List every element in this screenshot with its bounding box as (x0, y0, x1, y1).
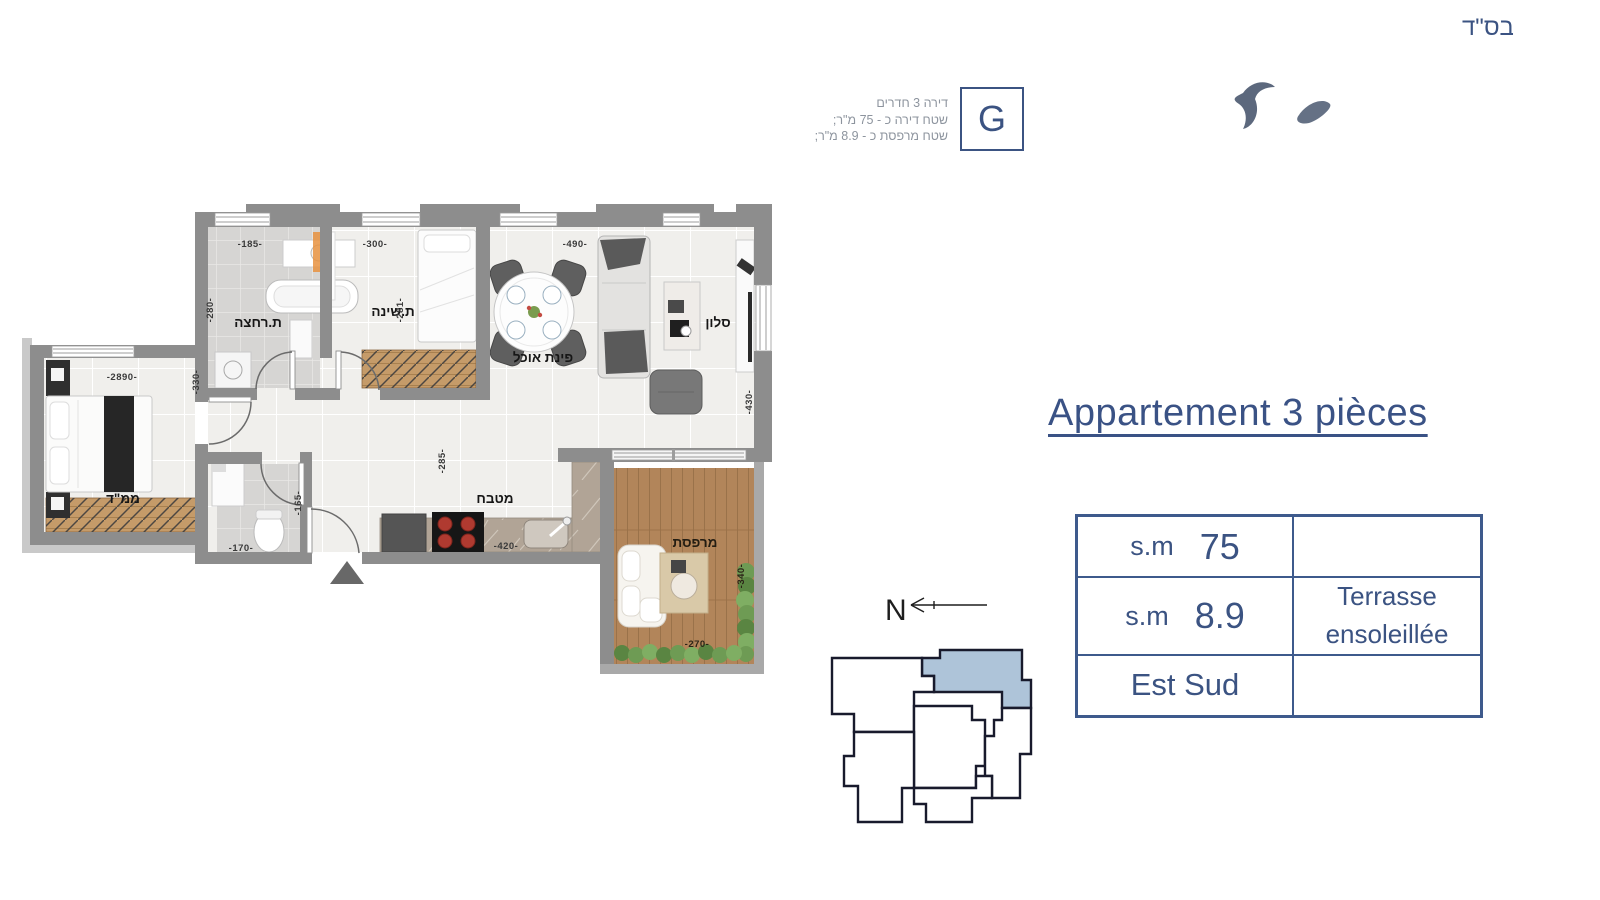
floorplan-sheet: בס"ד דירה 3 חדרים שטח דירה כ - 75 מ"ר; ש… (0, 0, 1600, 900)
dim-kitchen-width: -420- (494, 541, 519, 552)
door-leaf (336, 351, 341, 389)
washer (215, 352, 251, 388)
dim-bathroom-width: -185- (238, 239, 263, 250)
pillow (50, 447, 69, 484)
pillow (424, 235, 470, 252)
north-arrow-icon (911, 598, 987, 612)
terrace-note: Terrasse ensoleillée (1294, 578, 1480, 653)
dim-wc-width: -170- (229, 543, 254, 554)
door-leaf (307, 507, 312, 553)
throw-cushion (604, 330, 648, 374)
bird-icon (1235, 82, 1275, 129)
compass: N (865, 588, 1000, 633)
outdoor-table (671, 573, 697, 599)
dim-bedroom-width: -300- (363, 239, 388, 250)
counter-corner (572, 462, 602, 552)
door-leaf (290, 351, 295, 389)
apartment-area-value: 75 (1200, 526, 1240, 568)
unit-info-line3: שטח מרפסת כ - 8.9 מ"ר; (800, 128, 948, 145)
dim-salon-height: -430- (744, 390, 755, 415)
birds-illustration (1215, 75, 1340, 140)
room-label-mamad: ממ"ד (106, 491, 140, 506)
unit-letter-box: G (960, 87, 1024, 151)
floor-plan: ממ"ד ת.רחצה ת.שינה פינת אוכל סלון מטבח מ… (0, 0, 800, 900)
room-label-bedroom: ת.שינה (371, 304, 414, 319)
area-unit: s.m (1130, 531, 1174, 562)
bed-runner (104, 396, 134, 492)
orientation-note (1294, 656, 1480, 715)
coffee-table (664, 282, 700, 350)
spec-table: s.m 75 s.m 8.9 Terrasse ensoleillée Est … (1075, 514, 1483, 718)
entrance-arrow-icon (330, 561, 364, 584)
compass-north-label: N (885, 594, 907, 627)
fridge (382, 514, 426, 552)
unit-info-line1: דירה 3 חדרים (800, 95, 948, 112)
dim-bathroom-height: -280- (205, 298, 216, 323)
room-label-dining: פינת אוכל (513, 350, 574, 365)
terrace-unit: s.m (1125, 601, 1169, 632)
tv (748, 292, 752, 362)
room-label-salon: סלון (705, 315, 730, 330)
unit-letter: G (978, 98, 1006, 140)
bird-icon (1297, 101, 1330, 124)
apartment-title: Appartement 3 pièces (1048, 392, 1498, 435)
area-note (1294, 517, 1480, 576)
door-leaf (209, 397, 251, 402)
room-label-kitchen: מטבח (476, 491, 513, 506)
table-row-terrace: s.m 8.9 Terrasse ensoleillée (1078, 578, 1480, 655)
dim-living-width: -490- (563, 239, 588, 250)
orientation-value: Est Sud (1131, 667, 1240, 703)
table-row-orientation: Est Sud (1078, 656, 1480, 715)
dim-wc-height: -165- (293, 491, 304, 516)
room-label-bathroom: ת.רחצה (234, 315, 282, 330)
unit-info-block: דירה 3 חדרים שטח דירה כ - 75 מ"ר; שטח מר… (800, 95, 948, 145)
highlighted-apartment (922, 650, 1031, 708)
bsd-mark: בס"ד (1462, 14, 1514, 42)
unit-info-line2: שטח דירה כ - 75 מ"ר; (800, 112, 948, 129)
dim-bedroom-height: -281- (395, 298, 406, 323)
table-row-area: s.m 75 (1078, 517, 1480, 578)
dim-balcony-height: -340- (736, 564, 747, 589)
room-label-balcony: מרפסת (673, 535, 718, 550)
sliding-door (612, 450, 746, 460)
dim-mamad-height: -330- (191, 370, 202, 395)
dim-balcony-width: -270- (685, 639, 710, 650)
dim-mamad-width: -2890- (107, 372, 137, 383)
building-key-plan (822, 636, 1037, 828)
pillow (50, 402, 69, 439)
dim-kitchen-height: -285- (437, 449, 448, 474)
terrace-area-value: 8.9 (1195, 595, 1245, 637)
